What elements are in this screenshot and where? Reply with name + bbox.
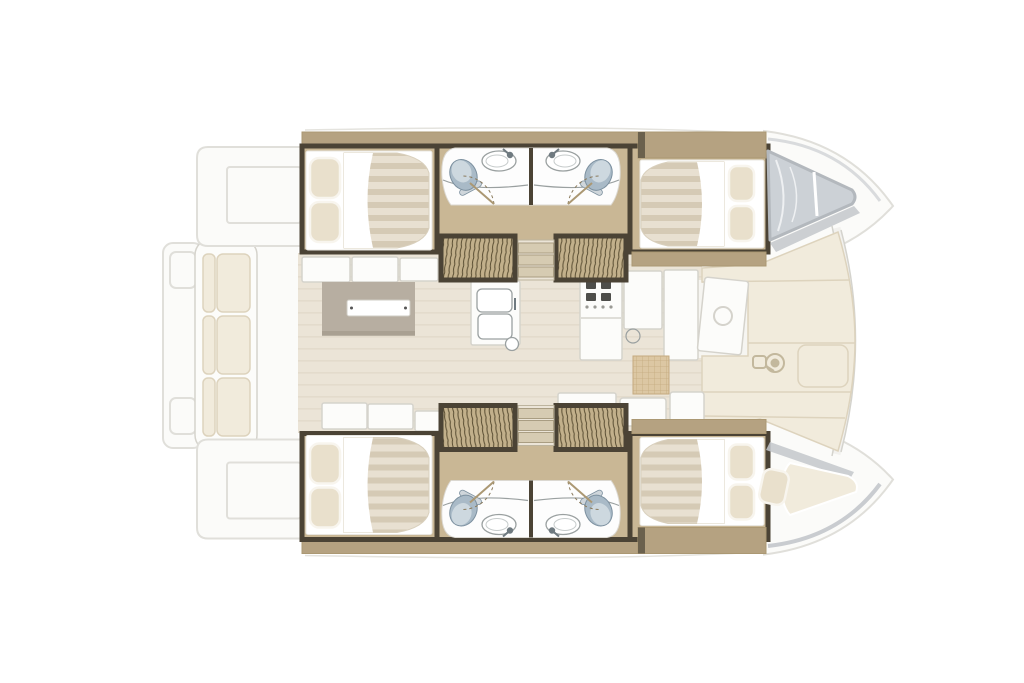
bench-back-cushion xyxy=(203,378,215,436)
sink-basin xyxy=(478,314,512,339)
table-runner xyxy=(347,300,410,316)
kettle xyxy=(506,338,519,351)
side-table xyxy=(670,392,704,422)
floor-plan-canvas: Catamaran interior layout floor plan — t… xyxy=(0,0,1024,683)
forward-door xyxy=(697,277,748,355)
sofa-bottom-segment xyxy=(368,404,413,429)
cockpit-bench xyxy=(195,239,257,451)
woven-mat xyxy=(633,356,669,394)
galley-cabinet xyxy=(624,271,662,329)
stove-unit xyxy=(580,275,622,360)
bench-seat-cushion xyxy=(217,316,250,374)
forepeak-pillow xyxy=(758,468,791,507)
sofa-bottom-segment xyxy=(415,411,440,431)
sofa-bottom-segment xyxy=(322,403,367,429)
sofa-top-segment xyxy=(302,257,350,282)
sink-basin xyxy=(477,289,512,312)
bench-seat-cushion xyxy=(217,378,250,436)
bench-back-cushion xyxy=(203,254,215,312)
fridge xyxy=(664,270,698,360)
sofa-top-segment xyxy=(352,257,398,282)
burner xyxy=(586,293,596,301)
burner xyxy=(601,293,611,301)
bench-back-cushion xyxy=(203,316,215,374)
sofa-top-segment xyxy=(400,258,438,281)
boat-floor-plan: Catamaran interior layout floor plan — t… xyxy=(0,0,1024,683)
galley-sink-unit xyxy=(471,281,520,351)
dining-table xyxy=(322,282,415,336)
bench-seat-cushion xyxy=(217,254,250,312)
